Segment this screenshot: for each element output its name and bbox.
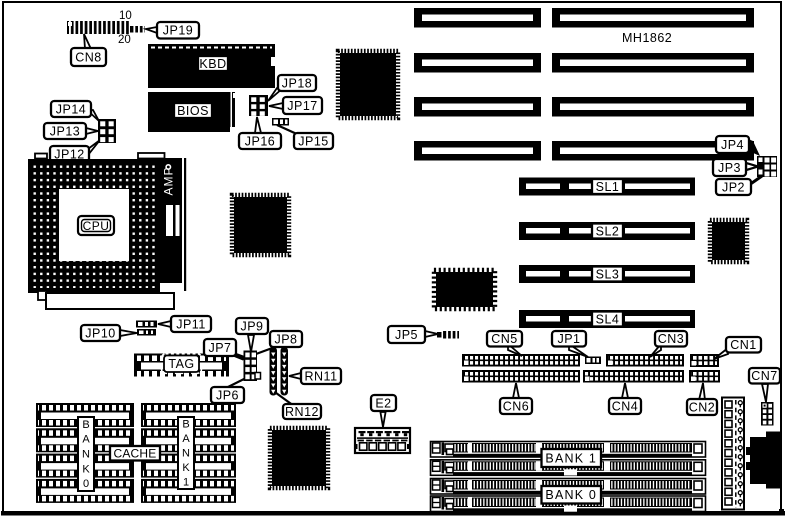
svg-text:1: 1 (183, 476, 189, 488)
svg-text:JP2: JP2 (722, 180, 745, 194)
svg-text:SL3: SL3 (596, 267, 620, 281)
svg-text:SL2: SL2 (596, 224, 620, 238)
svg-text:JP18: JP18 (282, 76, 313, 90)
svg-text:K: K (82, 463, 90, 475)
svg-text:A: A (182, 433, 190, 445)
svg-text:CN8: CN8 (75, 50, 102, 64)
svg-text:BANK 1: BANK 1 (545, 451, 597, 465)
svg-text:JP6: JP6 (216, 388, 239, 402)
svg-text:CACHE: CACHE (113, 447, 156, 461)
svg-text:KBD: KBD (199, 57, 226, 71)
svg-text:JP16: JP16 (245, 134, 276, 148)
svg-text:CN6: CN6 (503, 399, 530, 413)
svg-text:N: N (182, 448, 190, 460)
svg-text:TAG: TAG (168, 357, 194, 371)
svg-text:A: A (82, 434, 90, 446)
svg-text:0: 0 (83, 478, 89, 490)
svg-text:JP5: JP5 (395, 328, 418, 342)
svg-text:RN11: RN11 (304, 369, 337, 383)
svg-text:RN12: RN12 (285, 405, 319, 419)
svg-text:JP15: JP15 (298, 134, 329, 148)
svg-text:E2: E2 (375, 396, 391, 410)
svg-text:MH1862: MH1862 (622, 31, 672, 45)
svg-text:JP4: JP4 (721, 138, 744, 152)
svg-text:JP7: JP7 (208, 341, 231, 355)
svg-text:CN4: CN4 (612, 399, 639, 413)
svg-text:20: 20 (118, 34, 131, 46)
svg-text:SL1: SL1 (596, 180, 620, 194)
svg-text:BANK 0: BANK 0 (545, 488, 597, 502)
svg-text:10: 10 (119, 10, 132, 22)
svg-text:AMP: AMP (162, 166, 176, 195)
svg-text:JP10: JP10 (85, 326, 116, 340)
svg-text:JP3: JP3 (718, 161, 741, 175)
svg-text:CN7: CN7 (751, 369, 778, 383)
svg-text:JP19: JP19 (163, 24, 194, 38)
svg-text:CN1: CN1 (730, 338, 757, 352)
svg-text:JP8: JP8 (274, 332, 297, 346)
svg-text:K: K (182, 462, 190, 474)
svg-text:CN3: CN3 (658, 332, 685, 346)
svg-text:CPU: CPU (83, 219, 110, 233)
svg-text:SL4: SL4 (596, 312, 620, 326)
svg-text:JP14: JP14 (56, 102, 87, 116)
svg-text:JP13: JP13 (50, 124, 81, 138)
svg-text:JP9: JP9 (240, 319, 263, 333)
svg-text:BIOS: BIOS (177, 104, 209, 118)
svg-text:JP17: JP17 (287, 99, 318, 113)
svg-text:B: B (82, 419, 89, 431)
svg-text:N: N (82, 449, 90, 461)
svg-text:CN2: CN2 (689, 400, 716, 414)
svg-text:CN5: CN5 (491, 332, 518, 346)
svg-text:JP11: JP11 (176, 317, 206, 331)
svg-text:JP1: JP1 (557, 332, 580, 346)
svg-text:B: B (182, 419, 189, 431)
